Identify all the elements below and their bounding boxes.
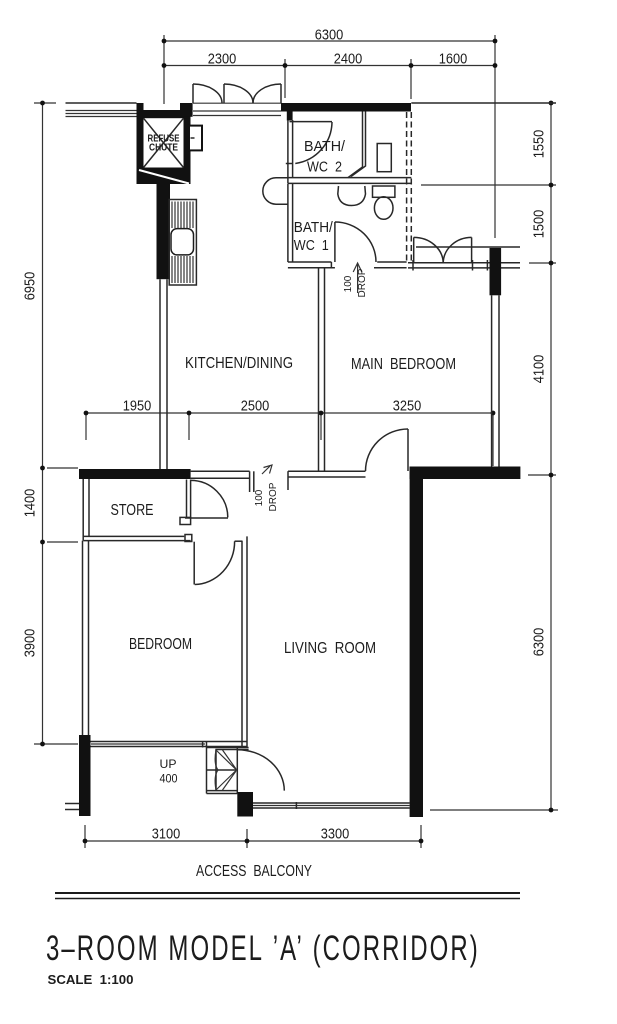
svg-text:1400: 1400 (23, 489, 39, 518)
svg-text:3–ROOM MODEL ’A’ (CORRIDOR): 3–ROOM MODEL ’A’ (CORRIDOR) (46, 930, 480, 968)
svg-text:DROP: DROP (268, 482, 279, 511)
svg-text:4100: 4100 (532, 355, 548, 384)
svg-text:3900: 3900 (23, 629, 39, 658)
svg-text:1500: 1500 (532, 210, 548, 239)
svg-text:6300: 6300 (315, 28, 344, 44)
svg-text:1550: 1550 (532, 130, 548, 159)
svg-text:DROP: DROP (357, 268, 368, 297)
svg-text:3300: 3300 (321, 827, 350, 843)
svg-text:1600: 1600 (439, 52, 468, 68)
svg-text:WC 2: WC 2 (307, 159, 342, 176)
svg-text:MAIN BEDROOM: MAIN BEDROOM (351, 356, 456, 373)
svg-text:BATH/: BATH/ (304, 138, 346, 155)
svg-text:400: 400 (160, 772, 178, 786)
svg-text:KITCHEN/DINING: KITCHEN/DINING (185, 355, 293, 372)
svg-text:2400: 2400 (334, 52, 363, 68)
svg-text:6300: 6300 (532, 628, 548, 657)
svg-text:3100: 3100 (152, 827, 181, 843)
svg-text:SCALE 1:100: SCALE 1:100 (48, 973, 134, 987)
svg-text:WC 1: WC 1 (294, 237, 329, 254)
svg-text:2500: 2500 (241, 399, 270, 415)
svg-text:3250: 3250 (393, 399, 422, 415)
svg-text:BATH/: BATH/ (294, 219, 334, 236)
svg-text:6950: 6950 (23, 272, 39, 301)
svg-text:UP: UP (160, 757, 177, 771)
svg-text:LIVING ROOM: LIVING ROOM (284, 640, 376, 657)
svg-text:BEDROOM: BEDROOM (129, 636, 192, 653)
svg-text:100: 100 (343, 275, 354, 292)
svg-text:2300: 2300 (208, 52, 237, 68)
svg-text:STORE: STORE (111, 502, 154, 519)
svg-text:ACCESS BALCONY: ACCESS BALCONY (196, 863, 312, 880)
svg-text:100: 100 (254, 489, 265, 506)
svg-text:CHUTE: CHUTE (149, 142, 178, 154)
svg-text:1950: 1950 (123, 399, 152, 415)
